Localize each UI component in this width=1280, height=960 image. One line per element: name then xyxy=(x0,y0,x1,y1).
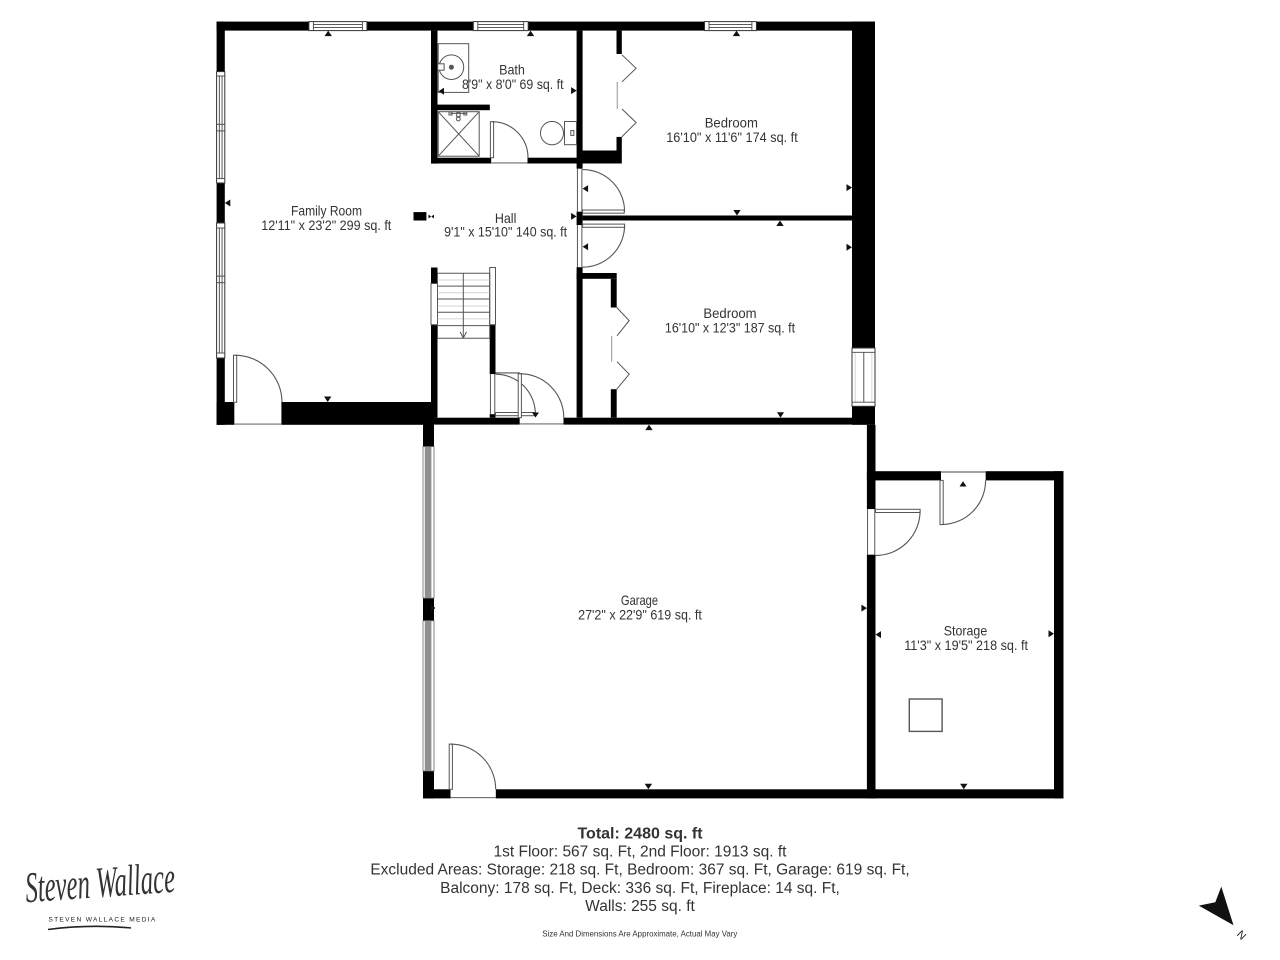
svg-text:27'2" x 22'9" 619 sq. ft: 27'2" x 22'9" 619 sq. ft xyxy=(578,608,702,623)
svg-text:Walls: 255 sq. ft: Walls: 255 sq. ft xyxy=(585,898,695,915)
svg-text:1st Floor: 567 sq. Ft, 2nd Flo: 1st Floor: 567 sq. Ft, 2nd Floor: 1913 s… xyxy=(494,843,788,860)
svg-text:Garage: Garage xyxy=(621,593,658,608)
svg-text:Bath: Bath xyxy=(499,63,525,78)
svg-text:Total: 2480 sq. ft: Total: 2480 sq. ft xyxy=(577,826,703,843)
svg-text:Bedroom: Bedroom xyxy=(703,306,756,321)
svg-text:Storage: Storage xyxy=(944,624,988,639)
svg-text:9'1" x 15'10" 140 sq. ft: 9'1" x 15'10" 140 sq. ft xyxy=(444,224,567,239)
svg-text:Bedroom: Bedroom xyxy=(705,116,758,131)
svg-text:12'11" x 23'2" 299 sq. ft: 12'11" x 23'2" 299 sq. ft xyxy=(261,218,391,233)
svg-text:11'3" x 19'5" 218 sq. ft: 11'3" x 19'5" 218 sq. ft xyxy=(904,638,1028,653)
svg-text:8'9" x 8'0" 69 sq. ft: 8'9" x 8'0" 69 sq. ft xyxy=(462,77,564,92)
svg-text:Size And Dimensions Are Approx: Size And Dimensions Are Approximate, Act… xyxy=(542,929,737,938)
svg-text:Family Room: Family Room xyxy=(291,203,362,218)
svg-text:16'10" x 12'3" 187 sq. ft: 16'10" x 12'3" 187 sq. ft xyxy=(665,321,795,336)
svg-text:Balcony: 178 sq. Ft, Deck: 336: Balcony: 178 sq. Ft, Deck: 336 sq. Ft, F… xyxy=(440,880,840,897)
svg-text:STEVEN WALLACE MEDIA: STEVEN WALLACE MEDIA xyxy=(48,917,156,924)
svg-text:Excluded Areas: Storage: 218 s: Excluded Areas: Storage: 218 sq. Ft, Bed… xyxy=(370,861,909,878)
svg-text:16'10" x 11'6" 174 sq. ft: 16'10" x 11'6" 174 sq. ft xyxy=(666,130,798,145)
